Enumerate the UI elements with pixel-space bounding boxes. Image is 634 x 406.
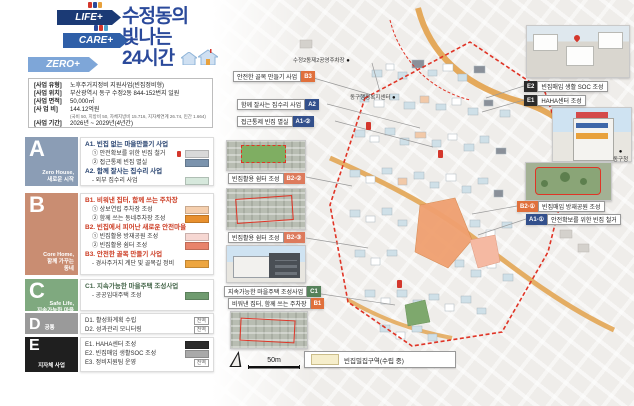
color-swatch [185,350,209,358]
photo-parking-site [230,311,308,349]
list-item: ① 상보연립 주차장 조성 [85,206,209,214]
section-b-tile: B Core Home, 함께 가꾸는 동네 [25,193,78,275]
callout-c1: 지속가능한 마을주택 조성사업 C1 [224,286,321,297]
landmark-dot-icon: ● [392,95,396,101]
project-info-box: [사업 유형]노후주거지정비 지원사업(빈집정비형) [사업 위치]부산광역시 … [28,78,213,128]
callout-b1: 비워낸 집터, 함께 쓰는 주차장 B1 [228,298,324,309]
badge-e2: E2 [524,81,537,92]
list-item: - 외부 집수리 사업 [85,177,209,185]
color-swatch [185,341,209,349]
badge-b1: B1 [311,298,325,309]
info-row: [사업 면적]50,000㎡ [34,98,207,106]
color-swatch [185,233,209,241]
callout-a1-1: A1-① 안전확보를 위한 빈집 철거 [526,214,621,225]
color-swatch [185,177,209,185]
section-c-tile: C Safe Life, 지속가능한 마을 [25,279,78,311]
landmark-parking: 수정2동제2공영주차장 ● [293,56,350,64]
list-item: E2. 빈집매입 생활SOC 조성 [85,350,209,358]
section-a-box: A1. 빈집 없는 마을만들기 사업 ① 안전확보를 위한 빈집 철거 ② 접근… [80,137,214,186]
photo-shelter-site-2 [226,188,306,230]
photo-village-housing-render [226,245,306,283]
list-item: - 공공임대주택 조성 [85,292,209,300]
list-item: ② 빈집활용 쉼터 조성 [85,242,209,250]
badge-b2-3: B2-③ [284,232,305,243]
list-item: ① 빈집활용 방재공원 조성 [85,233,209,241]
color-swatch [185,242,209,250]
color-swatch [185,260,209,268]
callout-a2: 함께 잘사는 집수리 사업 A2 [237,99,319,110]
photo-shelter-site-1 [226,140,306,171]
info-row: [사 업 비]144.12억원 [34,106,207,114]
plan-poster: LIFE+ CARE+ ZERO+ 수정동의 빛나는 24시간 [사업 유형]노… [0,0,634,406]
list-item: D2. 성과관리 모니터링전역 [85,326,209,334]
section-e-box: E1. HAHA센터 조성 E2. 빈집매입 생활SOC 조성 E3. 정비지원… [80,337,214,372]
list-item: D1. 활성화계획 수립전역 [85,317,209,325]
list-item: E3. 정비지원팀 운영전역 [85,359,209,367]
badge-b2-2: B2-② [284,173,305,184]
callout-b3: 안전한 골목 만들기 사업 B3 [233,71,315,82]
callout-e1: E1 HAHA센터 조성 [524,95,586,106]
arrow-care: CARE+ [63,33,129,48]
landmark-gu-office: ● 동구청 [613,149,628,163]
photo-disaster-park-site [525,162,612,201]
section-b-box: B1. 비워낸 집터, 함께 쓰는 주차장 ① 상보연립 주차장 조성 ② 함께… [80,193,214,275]
badge-b3: B3 [301,71,315,82]
page-title: 수정동의 빛나는 24시간 [122,6,188,69]
legend-swatch [311,354,339,365]
zone-badge: 전역 [194,317,209,325]
info-row: [사업 유형]노후주거지정비 지원사업(빈집정비형) [34,82,207,90]
color-swatch [185,159,209,167]
color-swatch [185,292,209,300]
section-a-tile: A Zero House, 새로운 시작 [25,137,78,186]
badge-a2: A2 [305,99,319,110]
list-item: ② 함께 쓰는 동네주차장 조성 [85,215,209,223]
badge-c1: C1 [307,286,321,297]
info-row: [사업 기간]2026년 ~ 2029년(4년간) [34,120,207,128]
landmark-dot-icon: ● [619,149,623,155]
list-item: - 경사주거지 계단 및 골목길 정비 [85,260,209,268]
zone-badge: 전역 [194,359,209,367]
badge-a1-1: A1-① [526,214,547,225]
arrow-zero: ZERO+ [28,57,98,72]
list-item: ② 접근통제 빈집 멸실 [85,159,209,167]
color-swatch [185,206,209,214]
fire-extinguisher-icon [177,151,181,157]
section-d-box: D1. 활성화계획 수립전역 D2. 성과관리 모니터링전역 [80,313,214,334]
arrow-life: LIFE+ [57,10,121,25]
people-pictogram [88,2,102,8]
landmark-dot-icon: ● [346,58,350,64]
landmark-welfare-center: 동구행정복지센터 ● [350,93,396,101]
zone-badge: 전역 [194,326,209,334]
info-row: [사업 위치]부산광역시 동구 수정2동 844-152번지 일원 [34,90,207,98]
color-swatch [185,215,209,223]
color-swatch [185,150,209,158]
list-item: E1. HAHA센터 조성 [85,341,209,349]
callout-b2-2: 빈집활용 쉼터 조성 B2-② [228,173,305,184]
people-pictogram [94,25,108,31]
list-item: ① 안전확보를 위한 빈집 철거 [85,150,209,158]
callout-b2-3: 빈집활용 쉼터 조성 B2-③ [228,232,305,243]
scale-bar: 50m [248,357,300,369]
badge-e1: E1 [524,95,537,106]
map-legend: 빈집밀집구역(수립 중) [304,351,456,368]
badge-a1-2: A1-② [293,116,314,127]
section-e-tile: E 지자체 사업 [25,337,78,372]
callout-e2: E2 빈집매입 생활 SOC 조성 [524,81,608,92]
callout-a1-2: 접근통제 빈집 멸실 A1-② [237,116,314,127]
photo-soc-render [526,25,630,78]
badge-b2-1: B2-① [517,201,538,212]
callout-b2-1: B2-① 빈집매입 방재공원 조성 [517,201,605,212]
house-icon [181,49,218,65]
section-c-box: C1. 지속가능한 마을주택 조성사업 - 공공임대주택 조성 [80,279,214,311]
map-pin-icon [573,34,581,42]
section-d-tile: D 공통 [25,313,78,334]
